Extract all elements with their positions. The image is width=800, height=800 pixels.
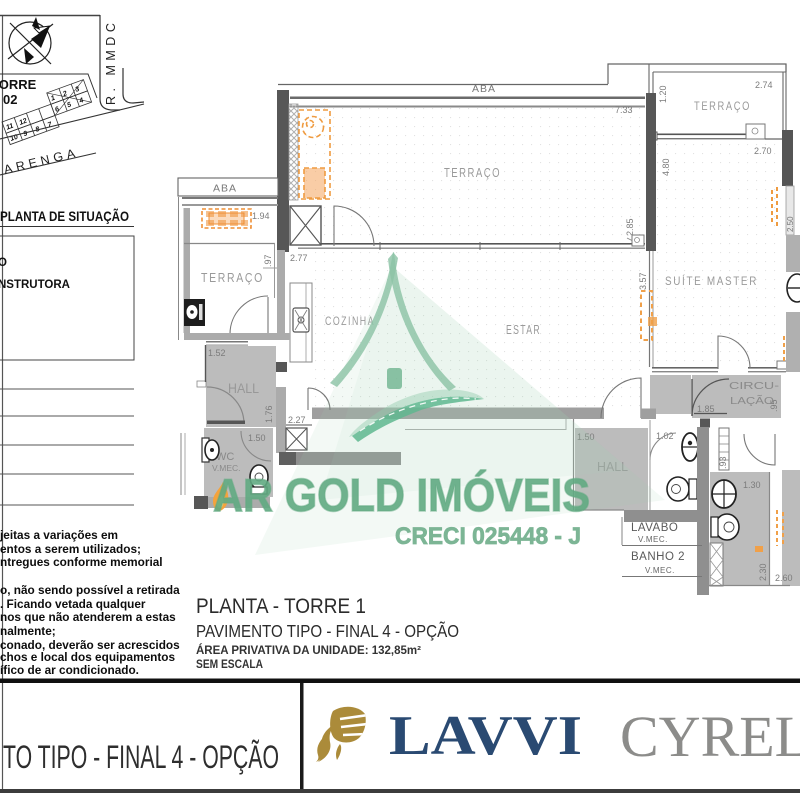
svg-text:2.50: 2.50 [786, 216, 795, 232]
svg-text:PLANTA - TORRE 1: PLANTA - TORRE 1 [196, 595, 366, 618]
svg-text:NSTRUTORA: NSTRUTORA [0, 279, 70, 291]
svg-text:ABA: ABA [472, 83, 496, 95]
svg-text:.93: .93 [718, 456, 728, 469]
svg-text:V.MEC.: V.MEC. [645, 566, 675, 575]
svg-text:SUÍTE MASTER: SUÍTE MASTER [665, 273, 758, 288]
svg-text:chos e local dos equipamentos: chos e local dos equipamentos [0, 650, 175, 664]
svg-text:entos a serem utilizados;: entos a serem utilizados; [0, 542, 141, 556]
svg-text:2.70: 2.70 [754, 146, 772, 156]
svg-text:1.30: 1.30 [743, 480, 761, 490]
svg-text:ntregues conforme memorial: ntregues conforme memorial [0, 555, 163, 569]
svg-text:TERRAÇO: TERRAÇO [694, 101, 751, 113]
svg-text:TO TIPO - FINAL 4 - OPÇÃO: TO TIPO - FINAL 4 - OPÇÃO [3, 739, 279, 775]
svg-text:1.85: 1.85 [697, 404, 715, 414]
svg-text:LAÇÃO: LAÇÃO [730, 394, 774, 407]
svg-text:1.52: 1.52 [208, 348, 226, 358]
svg-text:2.60: 2.60 [775, 573, 793, 583]
svg-text:2.30: 2.30 [758, 563, 768, 581]
svg-text:nalmente;: nalmente; [0, 624, 56, 638]
svg-text:ESTAR: ESTAR [506, 322, 541, 337]
svg-text:1.50: 1.50 [248, 433, 266, 443]
svg-text:TERRAÇO: TERRAÇO [444, 165, 501, 180]
svg-text:2.77: 2.77 [290, 253, 308, 263]
svg-text:PAVIMENTO TIPO - FINAL 4 - OPÇ: PAVIMENTO TIPO - FINAL 4 - OPÇÃO [196, 620, 459, 641]
svg-text:. Ficando vetada qualquer: . Ficando vetada qualquer [0, 597, 146, 611]
svg-text:jeitas a variações em: jeitas a variações em [0, 528, 118, 542]
svg-text:2.27: 2.27 [288, 415, 306, 425]
svg-text:ífico de ar condicionado.: ífico de ar condicionado. [0, 663, 139, 677]
svg-text:CIRCU-: CIRCU- [729, 380, 780, 392]
svg-text:ÁREA PRIVATIVA DA UNIDADE: 132: ÁREA PRIVATIVA DA UNIDADE: 132,85m² [196, 644, 421, 657]
svg-text:TORRE: TORRE [0, 77, 37, 92]
svg-text:o, não sendo possível a retira: o, não sendo possível a retirada [0, 583, 180, 597]
svg-text:2.85: 2.85 [625, 218, 635, 236]
svg-text:BANHO 2: BANHO 2 [631, 551, 685, 563]
svg-text:R. MMDC: R. MMDC [104, 19, 118, 105]
svg-text:LAVABO: LAVABO [631, 522, 678, 534]
svg-text:PLANTA DE SITUAÇÃO: PLANTA DE SITUAÇÃO [0, 209, 129, 224]
svg-text:O: O [0, 257, 7, 269]
svg-text:7.33: 7.33 [615, 105, 633, 115]
svg-text:V.MEC.: V.MEC. [638, 535, 668, 544]
svg-text:2.74: 2.74 [755, 80, 773, 90]
svg-text:1.76: 1.76 [264, 405, 274, 423]
svg-text:CRECI 025448 - J: CRECI 025448 - J [395, 523, 581, 550]
svg-text:.97: .97 [263, 254, 273, 267]
svg-text:HALL: HALL [228, 381, 259, 396]
svg-text:3.57: 3.57 [638, 272, 648, 290]
svg-text:.95: .95 [769, 399, 779, 412]
svg-text:TERRAÇO: TERRAÇO [201, 271, 264, 285]
svg-text:1.94: 1.94 [252, 211, 270, 221]
svg-text:4.80: 4.80 [661, 158, 671, 176]
svg-text:ABA: ABA [213, 183, 237, 195]
svg-text:02: 02 [3, 92, 17, 107]
svg-text:AR GOLD IMÓVEIS: AR GOLD IMÓVEIS [213, 469, 590, 521]
svg-text:nos que não atenderem a estas: nos que não atenderem a estas [0, 610, 176, 624]
svg-text:LAVVI: LAVVI [389, 705, 582, 767]
svg-text:CYRELA: CYRELA [620, 704, 800, 769]
svg-text:1.20: 1.20 [658, 85, 668, 103]
svg-text:SEM ESCALA: SEM ESCALA [196, 659, 263, 671]
